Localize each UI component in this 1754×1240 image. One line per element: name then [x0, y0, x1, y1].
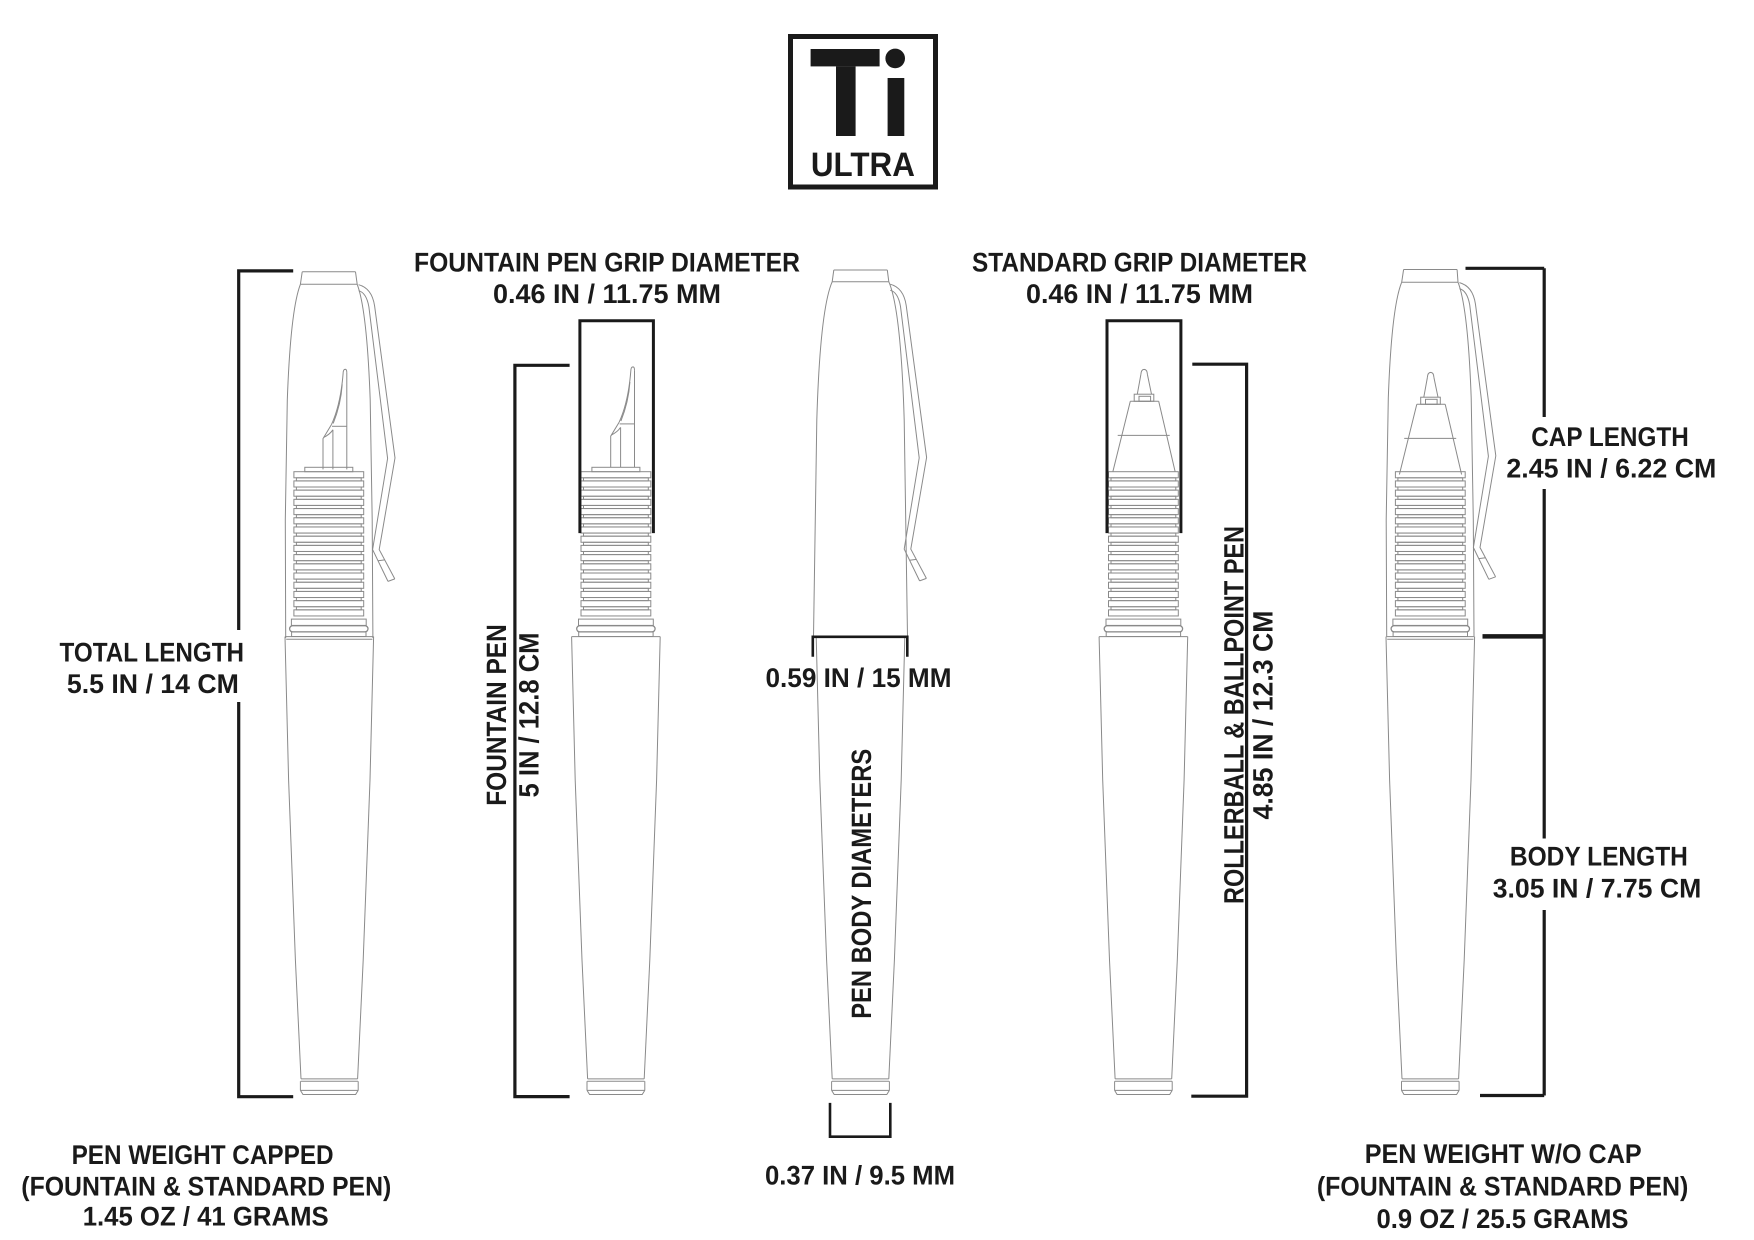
svg-text:FOUNTAIN PEN: FOUNTAIN PEN	[481, 624, 512, 806]
svg-text:(FOUNTAIN & STANDARD PEN): (FOUNTAIN & STANDARD PEN)	[1317, 1171, 1689, 1201]
svg-text:0.46 IN / 11.75 MM: 0.46 IN / 11.75 MM	[493, 279, 721, 309]
svg-text:(FOUNTAIN & STANDARD PEN): (FOUNTAIN & STANDARD PEN)	[21, 1171, 391, 1201]
svg-text:TOTAL LENGTH: TOTAL LENGTH	[60, 638, 245, 668]
svg-text:CAP LENGTH: CAP LENGTH	[1531, 422, 1689, 452]
svg-text:1.45 OZ / 41 GRAMS: 1.45 OZ / 41 GRAMS	[83, 1201, 329, 1231]
svg-text:0.46 IN / 11.75 MM: 0.46 IN / 11.75 MM	[1026, 279, 1253, 309]
svg-text:0.59 IN / 15 MM: 0.59 IN / 15 MM	[766, 663, 952, 693]
svg-text:5.5 IN / 14 CM: 5.5 IN / 14 CM	[67, 669, 239, 699]
svg-text:PEN WEIGHT CAPPED: PEN WEIGHT CAPPED	[72, 1140, 334, 1170]
svg-text:3.05 IN / 7.75 CM: 3.05 IN / 7.75 CM	[1493, 874, 1702, 904]
svg-text:0.9 OZ / 25.5 GRAMS: 0.9 OZ / 25.5 GRAMS	[1377, 1204, 1629, 1234]
svg-text:STANDARD GRIP DIAMETER: STANDARD GRIP DIAMETER	[972, 248, 1307, 278]
svg-text:ROLLERBALL & BALLPOINT PEN: ROLLERBALL & BALLPOINT PEN	[1219, 526, 1250, 904]
svg-text:PEN BODY DIAMETERS: PEN BODY DIAMETERS	[846, 749, 877, 1019]
svg-text:5 IN / 12.8 CM: 5 IN / 12.8 CM	[514, 633, 545, 798]
svg-text:0.37 IN / 9.5 MM: 0.37 IN / 9.5 MM	[765, 1160, 955, 1190]
svg-text:FOUNTAIN PEN GRIP DIAMETER: FOUNTAIN PEN GRIP DIAMETER	[414, 248, 800, 278]
svg-text:ULTRA: ULTRA	[811, 146, 915, 184]
svg-text:4.85 IN / 12.3 CM: 4.85 IN / 12.3 CM	[1248, 611, 1279, 820]
svg-text:2.45 IN / 6.22 CM: 2.45 IN / 6.22 CM	[1506, 454, 1716, 484]
svg-text:PEN WEIGHT W/O CAP: PEN WEIGHT W/O CAP	[1365, 1139, 1642, 1169]
svg-text:BODY LENGTH: BODY LENGTH	[1510, 841, 1688, 871]
